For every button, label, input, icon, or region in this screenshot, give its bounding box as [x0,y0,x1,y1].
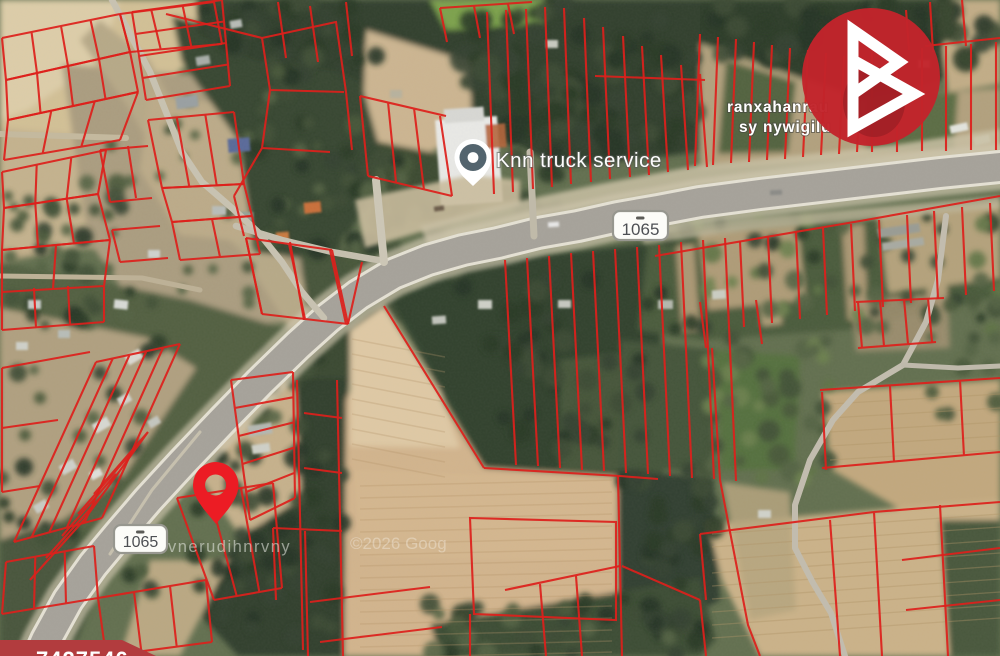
svg-text:1065: 1065 [123,534,159,551]
svg-text:7427546: 7427546 [36,647,129,656]
svg-text:©2026 Goog: ©2026 Goog [350,534,447,553]
svg-text:1065: 1065 [622,220,660,239]
svg-text:sy nywigilu: sy nywigilu [739,119,831,136]
svg-text:vnerudihnrvny: vnerudihnrvny [168,538,291,556]
svg-text:Knn truck service: Knn truck service [496,149,662,172]
